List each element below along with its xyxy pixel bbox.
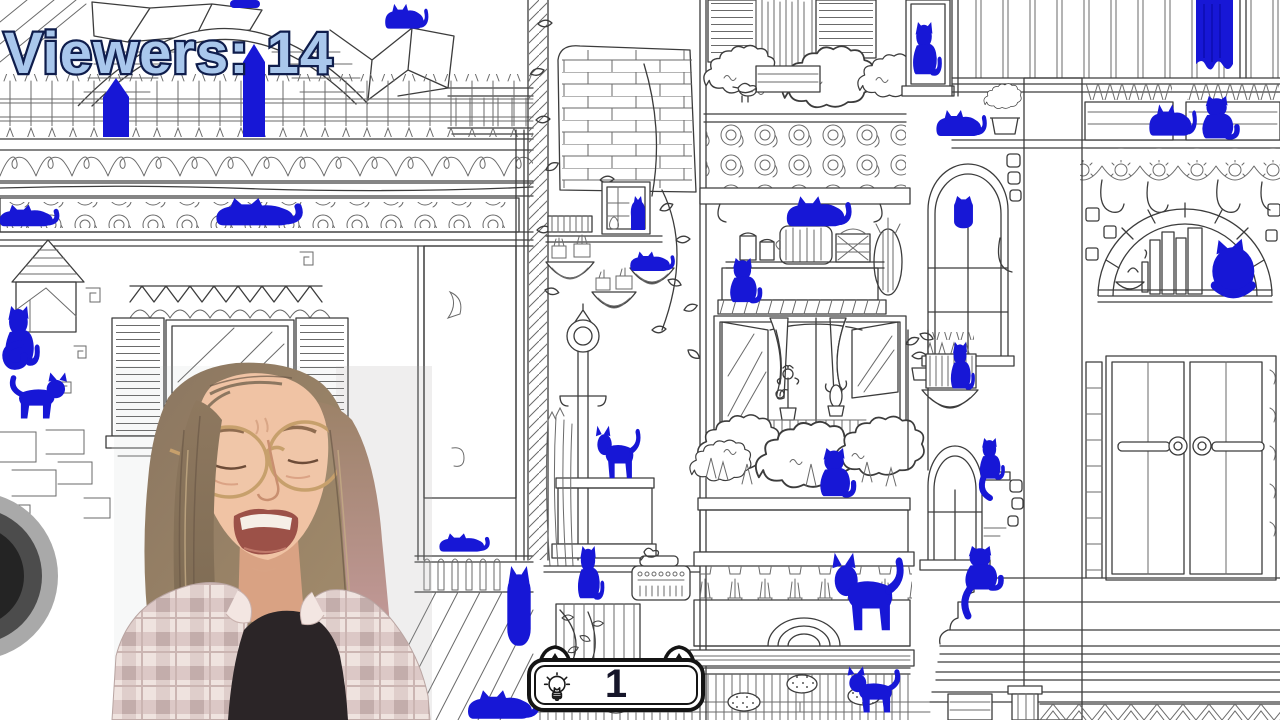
hidden-cat[interactable] bbox=[596, 426, 638, 479]
hidden-cat[interactable] bbox=[439, 533, 487, 551]
streamer-webcam bbox=[112, 363, 432, 720]
hidden-cat[interactable] bbox=[230, 0, 260, 8]
hidden-cat-tail bbox=[965, 586, 972, 616]
hidden-cat[interactable] bbox=[954, 196, 973, 228]
hint-button-body[interactable]: 1 bbox=[527, 658, 705, 712]
hidden-cat[interactable] bbox=[730, 258, 760, 302]
hidden-cat[interactable] bbox=[507, 566, 530, 646]
hidden-cat[interactable] bbox=[385, 4, 426, 29]
hint-button[interactable]: 1 bbox=[527, 645, 707, 716]
game-screen: Viewers: 14 1 bbox=[0, 0, 1280, 720]
blue-curtain bbox=[1196, 0, 1233, 70]
hidden-cat[interactable] bbox=[13, 372, 67, 418]
hint-count: 1 bbox=[531, 662, 701, 708]
hidden-cat[interactable] bbox=[936, 110, 984, 136]
microphone bbox=[0, 492, 58, 660]
hidden-cats-scene bbox=[0, 0, 1280, 720]
hidden-cat[interactable] bbox=[630, 252, 673, 272]
viewers-counter: Viewers: 14 bbox=[4, 20, 333, 87]
